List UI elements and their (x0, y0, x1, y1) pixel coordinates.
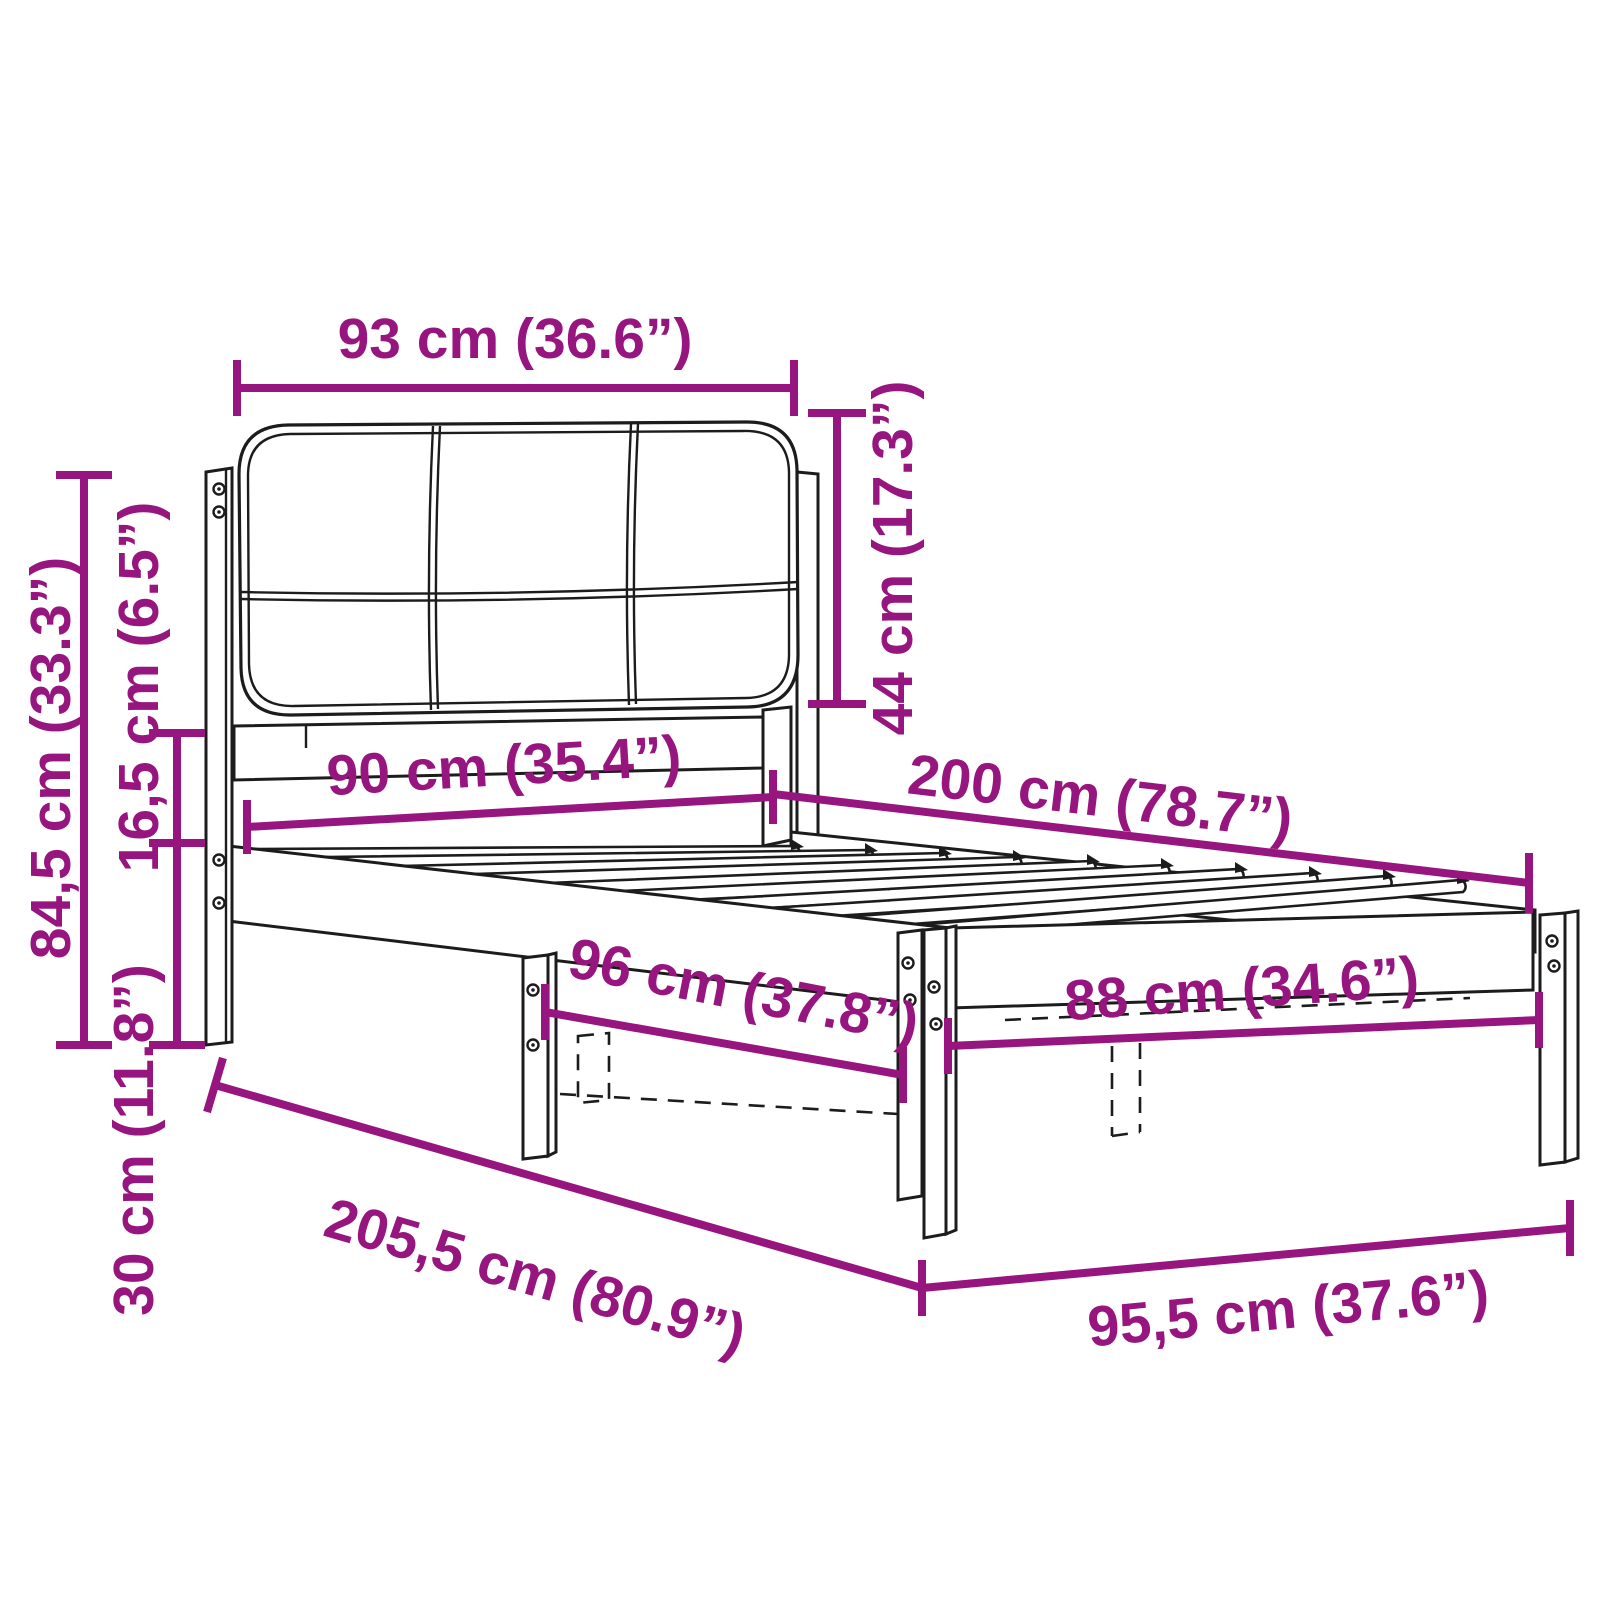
dim-label-total-height: 84,5 cm (33.3”) (19, 557, 83, 959)
dim-label-total-width: 95,5 cm (37.6”) (1085, 1259, 1492, 1360)
leg-mid-near-side (548, 953, 556, 1156)
headboard-post-left (206, 468, 232, 1045)
dim-label-base-height: 30 cm (11.8”) (102, 964, 166, 1316)
dim-label-headboard-width: 93 cm (36.6”) (338, 307, 693, 371)
leg-foot-near-front-side (946, 926, 956, 1234)
dim-total-width: 95,5 cm (37.6”) (922, 1200, 1570, 1360)
dim-gap-and-base: 16,5 cm (6.5”) 30 cm (11.8”) (102, 502, 205, 1316)
dim-label-headboard-frame-gap: 16,5 cm (6.5”) (107, 502, 171, 873)
headboard-cushion (239, 422, 798, 715)
leg-foot-far-side (1565, 911, 1578, 1162)
bed-dimension-diagram: 93 cm (36.6”) 44 cm (17.3”) 84,5 cm (33.… (0, 0, 1600, 1600)
dim-total-length: 205,5 cm (80.9”) (207, 1058, 922, 1367)
dim-total-height: 84,5 cm (33.3”) (19, 475, 112, 1045)
leg-foot-far (1540, 913, 1565, 1165)
dim-label-headboard-height: 44 cm (17.3”) (861, 381, 925, 736)
dim-label-total-length: 205,5 cm (80.9”) (318, 1186, 753, 1367)
diagram-canvas: 93 cm (36.6”) 44 cm (17.3”) 84,5 cm (33.… (0, 0, 1600, 1600)
leg-foot-near-front (924, 928, 946, 1238)
headboard-post-right (797, 472, 818, 842)
dim-headboard-width: 93 cm (36.6”) (237, 307, 794, 416)
hidden-center-supports (560, 998, 1470, 1136)
dim-headboard-height: 44 cm (17.3”) (808, 381, 925, 736)
